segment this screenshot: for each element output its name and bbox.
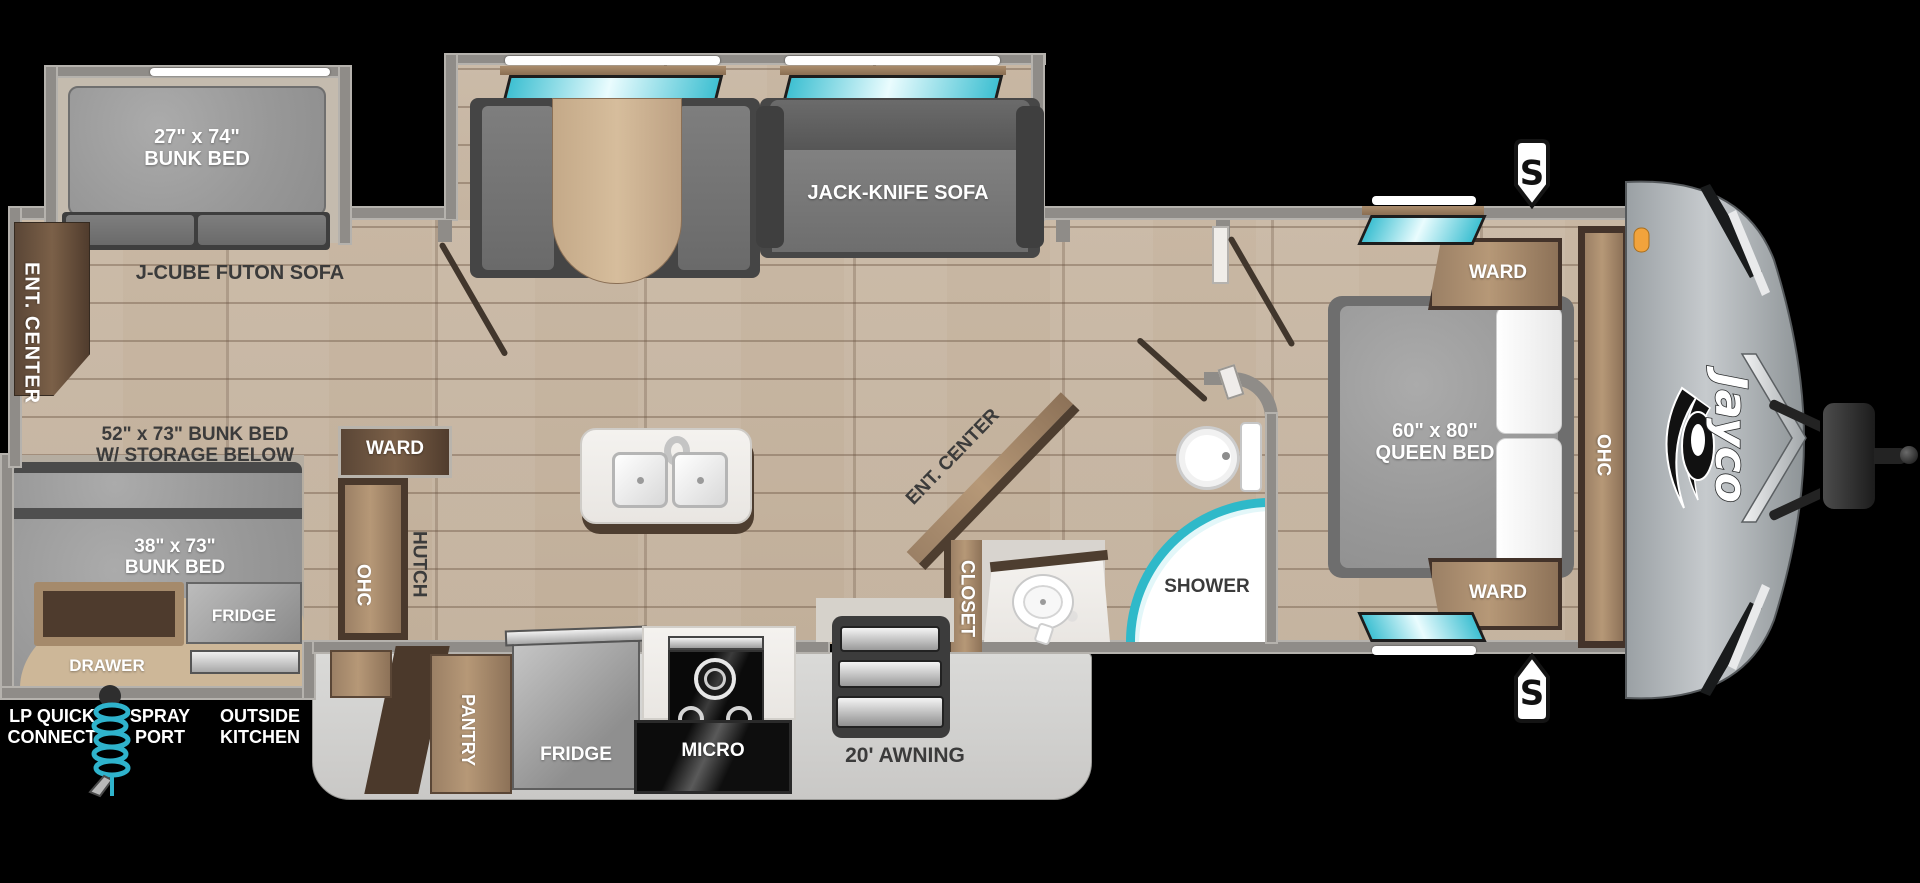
- marker-light: [1634, 228, 1649, 252]
- hitch-ball-icon: [1900, 446, 1918, 464]
- hall-wall-stub: [1056, 220, 1070, 242]
- floorplan-canvas: 20' AWNING FRIDGE DRAWER 38" x 73" BUNK …: [0, 0, 1920, 883]
- kitchen-fridge: [512, 640, 640, 790]
- toilet-tank: [1240, 422, 1262, 492]
- bed-window-top: [1357, 215, 1486, 245]
- sink-left-drain: [637, 477, 644, 484]
- bunk27-light-strip: [150, 68, 330, 76]
- svg-text:S: S: [1520, 154, 1545, 194]
- bunk52-bed: [14, 473, 302, 508]
- bunk-slide-wall-bottom: [0, 686, 316, 700]
- bath-sink-drain: [1040, 599, 1046, 605]
- sofa-label: JACK-KNIFE SOFA: [778, 182, 1018, 204]
- ent-center-label: ENT. CENTER: [20, 238, 42, 428]
- bunk52-label: 52" x 73" BUNK BED W/ STORAGE BELOW: [70, 424, 320, 467]
- kitchen-fridge-label: FRIDGE: [520, 744, 632, 765]
- bunk38-label: 38" x 73" BUNK BED: [90, 536, 260, 579]
- bunk-fridge-door: [190, 650, 300, 674]
- bed-door-leaf: [1212, 226, 1229, 284]
- storage-shelf: [34, 582, 184, 646]
- awning-label: 20' AWNING: [790, 744, 1020, 768]
- bed-ohc-label: OHC: [1592, 418, 1613, 492]
- mid-ohc-label: OHC: [352, 550, 373, 620]
- entry-step-3: [836, 696, 944, 728]
- mid-ward-label: WARD: [348, 438, 442, 459]
- sofa-light-strip: [785, 56, 1000, 65]
- sofa-arm-right: [1016, 106, 1044, 248]
- futon-cushion-right: [198, 215, 326, 245]
- bed-window-bottom-strip: [1372, 646, 1476, 655]
- sink-right-drain: [697, 477, 704, 484]
- pantry-label: PANTRY: [458, 684, 478, 776]
- burner-main-icon: [694, 658, 736, 700]
- slide-wall-left: [444, 53, 458, 221]
- queen-bed-label: 60" x 80" QUEEN BED: [1340, 420, 1530, 465]
- entry-step-1: [840, 626, 940, 652]
- bed-window-top-valance: [1362, 206, 1484, 215]
- speaker-badge-top: S: [1512, 138, 1552, 210]
- bed-ward-bottom-label: WARD: [1448, 582, 1548, 603]
- propane-cover: [1820, 400, 1878, 512]
- entry-step-2: [838, 660, 942, 688]
- dinette-bench-right: [678, 106, 750, 270]
- queen-pillow-top: [1496, 306, 1562, 434]
- dinette-light-strip: [505, 56, 720, 65]
- bath-wall-right: [1265, 412, 1278, 644]
- dinette-table: [552, 98, 682, 284]
- sofa-back: [770, 100, 1030, 152]
- bunk-slide-wall-left: [0, 453, 14, 700]
- toilet-flush: [1222, 452, 1230, 460]
- drawer-label: DRAWER: [52, 656, 162, 675]
- bunk27-wall-right: [338, 65, 352, 245]
- bunkroom-door-stub: [438, 220, 452, 242]
- toilet-bowl: [1176, 426, 1240, 490]
- bed-window-top-strip: [1372, 196, 1476, 205]
- spray-port-label: SPRAY PORT: [120, 706, 200, 747]
- hutch-label: HUTCH: [408, 526, 429, 602]
- bed-ward-top-label: WARD: [1448, 262, 1548, 283]
- bunk-fridge-label: FRIDGE: [196, 606, 292, 625]
- outside-kitchen-label: OUTSIDE KITCHEN: [208, 706, 312, 747]
- bunk38-edge: [14, 508, 302, 519]
- futon-label: J-CUBE FUTON SOFA: [120, 262, 360, 284]
- sofa-arm-left: [756, 106, 784, 248]
- bed-window-bottom: [1357, 612, 1486, 642]
- kitchen-corner-cab: [330, 650, 392, 698]
- wall-top-mid: [340, 206, 456, 220]
- svg-text:S: S: [1520, 674, 1545, 714]
- closet-label: CLOSET: [956, 556, 977, 642]
- shower-label: SHOWER: [1152, 576, 1262, 597]
- speaker-badge-bottom: S: [1512, 652, 1552, 724]
- jayco-logo: Jayco: [1705, 365, 1756, 503]
- bunk27-wall-left: [44, 65, 58, 245]
- dinette-bench-left: [482, 106, 554, 270]
- stove-top-trim: [668, 636, 764, 650]
- bunk27-label: 27" x 74" BUNK BED: [112, 126, 282, 171]
- sofa-valance: [780, 66, 1006, 75]
- dinette-valance: [500, 66, 726, 75]
- micro-label: MICRO: [652, 740, 774, 761]
- front-cap: Jayco: [1624, 176, 1808, 704]
